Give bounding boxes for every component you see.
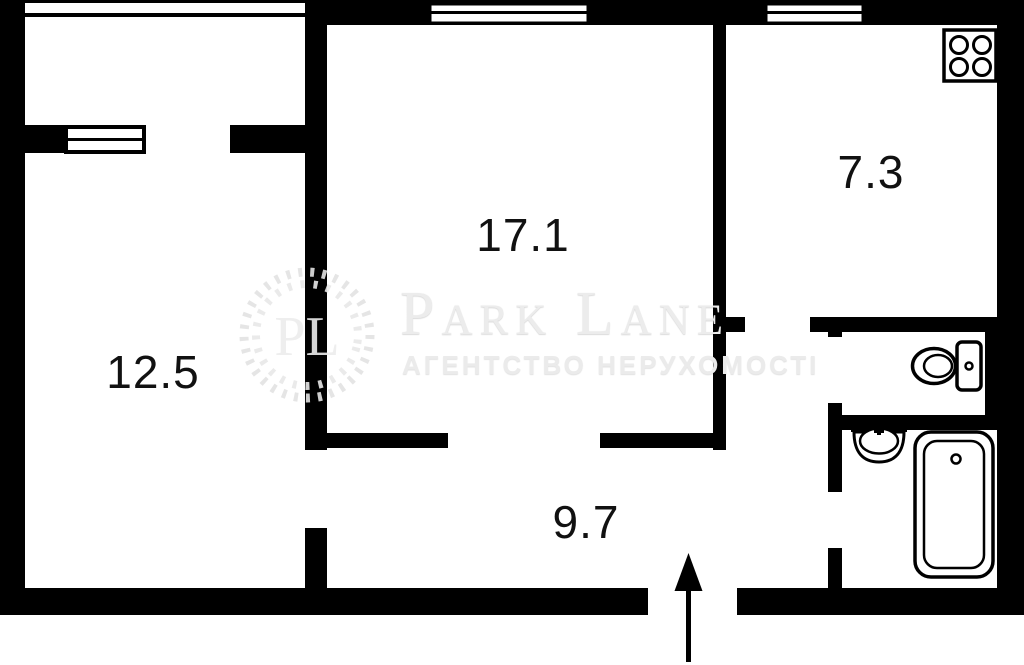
balcony-inner-line [25,13,305,17]
stove-icon [944,30,996,81]
room-area-label-bedroom: 17.1 [476,208,570,262]
living-room-right-wall-lower [305,528,327,588]
balcony-window-icon [66,127,144,152]
wc-left-wall-tab [828,332,842,337]
top-wall [305,0,1024,25]
balcony-wall-left [25,125,65,153]
balcony-outer-line [0,0,307,3]
balcony-wall-right [230,125,305,153]
bedroom-right-wall [713,25,726,450]
toilet-icon [913,342,982,390]
watermark-monogram: PL [274,306,339,368]
room-area-label-living-room: 12.5 [106,345,200,399]
floor-plan: PL Park Lane АГЕНТСТВО НЕРУХОМОСТІ 12.5 … [0,0,1024,665]
bedroom-window-icon [430,4,588,23]
bedroom-bottom-wall-left [327,433,448,448]
bottom-wall-right [737,588,1024,615]
wc-bottom-wall [842,415,997,430]
kitchen-bottom-wall [810,317,997,332]
room-area-label-kitchen: 7.3 [838,145,905,199]
bottom-wall-left [0,588,648,615]
left-outer-wall [0,0,25,615]
watermark-tagline: АГЕНТСТВО НЕРУХОМОСТІ [402,350,762,381]
right-outer-wall [997,0,1024,615]
bath-left-wall-lower [828,548,842,588]
room-area-label-hallway: 9.7 [553,495,620,549]
entrance-arrow-icon [675,553,703,662]
bathtub-icon [915,432,993,577]
bedroom-bottom-wall-right [600,433,726,448]
wc-right-wall-chunk [985,332,997,415]
watermark-brand: Park Lane [400,283,760,345]
wc-bath-left-wall [828,403,842,492]
kitchen-window-icon [766,4,863,23]
